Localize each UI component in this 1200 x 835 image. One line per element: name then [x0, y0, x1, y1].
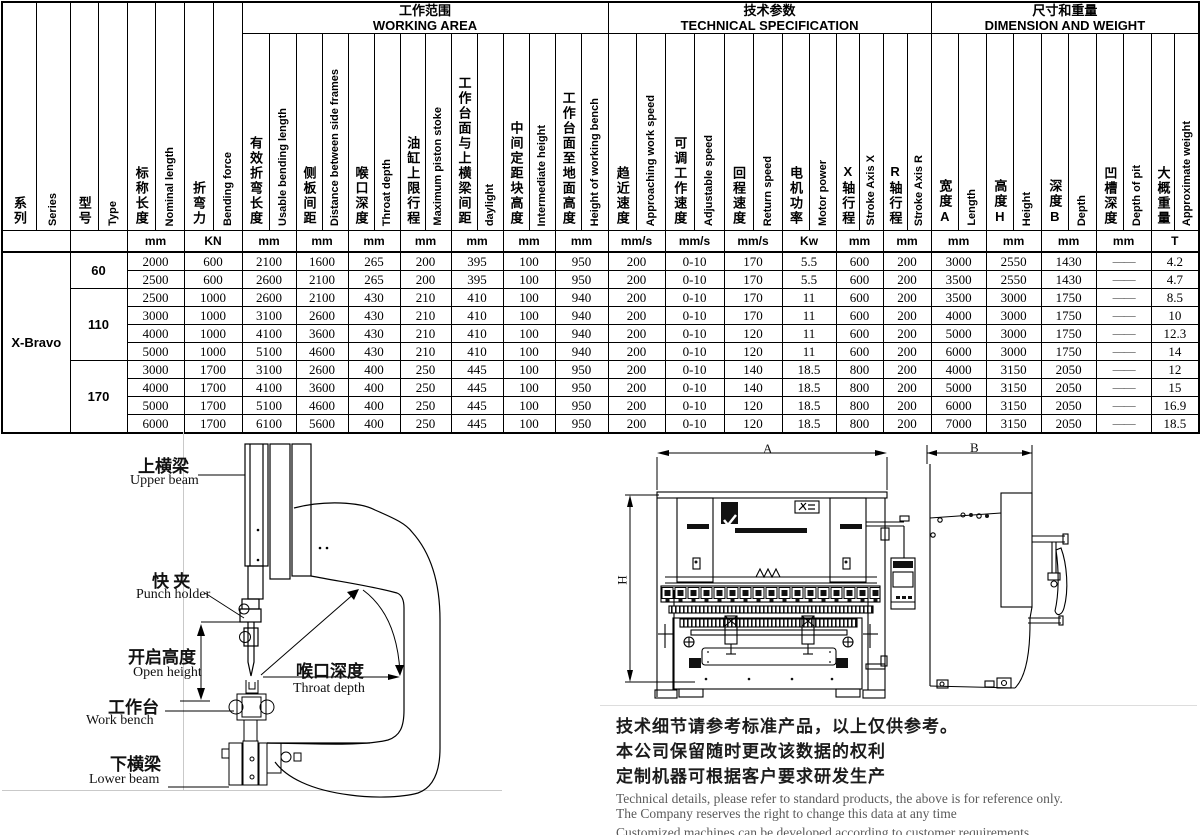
- spec-cell: 0-10: [665, 361, 724, 379]
- series-cell: X-Bravo: [2, 252, 70, 433]
- spec-cell: 2000: [127, 252, 184, 271]
- spec-cell: 250: [400, 361, 451, 379]
- spec-cell: 2500: [127, 289, 184, 307]
- open-height-label-en: Open height: [133, 665, 202, 681]
- spec-cell: 600: [836, 252, 883, 271]
- spec-cell: 6000: [931, 397, 986, 415]
- column-header-cn: 可调工作速度: [670, 136, 689, 226]
- spec-cell: 1000: [184, 289, 242, 307]
- spec-table: 系列Series 型号Type 标称长度Nominal length 折弯力Be…: [1, 1, 1200, 434]
- spec-cell: 200: [608, 361, 665, 379]
- spec-cell: ——: [1096, 307, 1151, 325]
- throat-depth-label-cn: 喉口深度: [296, 657, 364, 682]
- spec-cell: 940: [555, 289, 608, 307]
- disclaimer-en-line: The Company reserves the right to change…: [616, 807, 1063, 822]
- spec-cell: 11: [782, 289, 836, 307]
- column-header-depth-b: 深度BDepth: [1041, 34, 1096, 231]
- group-label-en: DIMENSION AND WEIGHT: [932, 18, 1199, 33]
- spec-cell: 800: [836, 379, 883, 397]
- spec-cell: 2050: [1041, 361, 1096, 379]
- unit-cell: [2, 231, 70, 253]
- column-header-height-h: 高度HHeight: [986, 34, 1041, 231]
- column-header-cn: R轴行程: [886, 164, 905, 226]
- spec-cell: 1750: [1041, 325, 1096, 343]
- spec-cell: 2050: [1041, 379, 1096, 397]
- spec-cell: ——: [1096, 343, 1151, 361]
- spec-cell: 400: [348, 397, 400, 415]
- column-header-cn: 高度H: [990, 179, 1009, 226]
- spec-cell: 10: [1151, 307, 1199, 325]
- column-header-piston-stroke: 油缸上限行程Maximum piston stoke: [400, 34, 451, 231]
- spec-cell: ——: [1096, 289, 1151, 307]
- column-header-cn: 深度B: [1045, 179, 1064, 226]
- column-header-en: Motor power: [817, 160, 829, 226]
- spec-cell: 18.5: [782, 415, 836, 434]
- spec-cell: 4000: [931, 361, 986, 379]
- spec-cell: 1430: [1041, 252, 1096, 271]
- column-header-cn: 大概重量: [1153, 166, 1172, 226]
- column-header-cn: 有效折弯长度: [246, 136, 265, 226]
- dim-a-label: A: [763, 441, 772, 457]
- spec-cell: 0-10: [665, 289, 724, 307]
- spec-cell: 210: [400, 343, 451, 361]
- spec-cell: 800: [836, 361, 883, 379]
- spec-cell: 3000: [127, 307, 184, 325]
- spec-cell: 120: [724, 325, 782, 343]
- spec-cell: 210: [400, 289, 451, 307]
- column-header-cn: 凹槽深度: [1100, 166, 1119, 226]
- spec-cell: 2600: [296, 361, 348, 379]
- spec-cell: 940: [555, 307, 608, 325]
- spec-cell: 200: [883, 361, 931, 379]
- spec-cell: 200: [883, 397, 931, 415]
- spec-cell: 170: [724, 271, 782, 289]
- group-header-row: 系列Series 型号Type 标称长度Nominal length 折弯力Be…: [2, 2, 1199, 34]
- spec-cell: 445: [451, 397, 503, 415]
- spec-cell: 12.3: [1151, 325, 1199, 343]
- unit-cell: mm: [931, 231, 986, 253]
- spec-cell: 600: [836, 343, 883, 361]
- spec-cell: 11: [782, 307, 836, 325]
- spec-cell: 0-10: [665, 252, 724, 271]
- column-header-en: Height: [1021, 192, 1033, 226]
- disclaimer-en-line: Customized machines can be developed acc…: [616, 826, 1063, 835]
- unit-cell: Kw: [782, 231, 836, 253]
- front-view-diagram: [615, 440, 925, 710]
- column-header-en: Type: [107, 201, 119, 226]
- spec-cell: 4000: [127, 379, 184, 397]
- spec-cell: 170: [724, 289, 782, 307]
- spec-cell: 3600: [296, 379, 348, 397]
- group-label-cn: 工作范围: [243, 3, 608, 18]
- spec-cell: 5100: [242, 343, 296, 361]
- column-header-en: Usable bending length: [277, 108, 289, 226]
- spec-row: 2500600260021002652003951009502000-10170…: [2, 271, 1199, 289]
- unit-cell: mm: [986, 231, 1041, 253]
- spec-cell: 3100: [242, 361, 296, 379]
- spec-cell: 200: [608, 379, 665, 397]
- spec-cell: 200: [883, 415, 931, 434]
- spec-cell: 200: [883, 307, 931, 325]
- separator-line: [600, 705, 1197, 706]
- column-header-cn: 趋近速度: [613, 166, 632, 226]
- column-header-cn: 标称长度: [132, 166, 151, 226]
- spec-cell: 4100: [242, 325, 296, 343]
- column-header-cn: X轴行程: [838, 164, 857, 226]
- dim-h-label: H: [615, 575, 631, 584]
- column-header-motor-power: 电机功率Motor power: [782, 34, 836, 231]
- group-technical-specification: 技术参数 TECHNICAL SPECIFICATION: [608, 2, 931, 34]
- spec-cell: 430: [348, 289, 400, 307]
- spec-cell: 410: [451, 289, 503, 307]
- spec-cell: 600: [184, 252, 242, 271]
- spec-cell: 210: [400, 307, 451, 325]
- spec-cell: 395: [451, 252, 503, 271]
- spec-cell: 950: [555, 415, 608, 434]
- disclaimer-cn-line: 本公司保留随时更改该数据的权利: [616, 739, 958, 764]
- unit-cell: mm: [883, 231, 931, 253]
- column-header-stroke-r: R轴行程Stroke Axis R: [883, 34, 931, 231]
- punch-holder-label-en: Punch holder: [136, 587, 210, 603]
- spec-row: 40001700410036004002504451009502000-1014…: [2, 379, 1199, 397]
- spec-cell: 4.2: [1151, 252, 1199, 271]
- spec-cell: 1700: [184, 379, 242, 397]
- spec-cell: 15: [1151, 379, 1199, 397]
- spec-cell: 1700: [184, 397, 242, 415]
- spec-cell: 430: [348, 343, 400, 361]
- type-cell: 110: [70, 289, 127, 361]
- unit-cell: mm/s: [608, 231, 665, 253]
- type-cell: 170: [70, 361, 127, 434]
- spec-cell: 2100: [296, 289, 348, 307]
- spec-cell: 2550: [986, 252, 1041, 271]
- spec-cell: 1600: [296, 252, 348, 271]
- spec-cell: 0-10: [665, 307, 724, 325]
- spec-cell: 5.5: [782, 252, 836, 271]
- spec-cell: 1000: [184, 343, 242, 361]
- column-header-intermediate-height: 中间定距块高度Intermediate height: [503, 34, 555, 231]
- spec-cell: 1750: [1041, 289, 1096, 307]
- spec-cell: 210: [400, 325, 451, 343]
- side-view-diagram: [925, 440, 1075, 710]
- spec-cell: 7000: [931, 415, 986, 434]
- spec-cell: 4000: [931, 307, 986, 325]
- column-header-en: Stroke Axis X: [865, 155, 877, 226]
- spec-cell: 200: [883, 289, 931, 307]
- spec-cell: 200: [608, 397, 665, 415]
- unit-cell: mm: [1096, 231, 1151, 253]
- column-header-approach-speed: 趋近速度Approaching work speed: [608, 34, 665, 231]
- spec-cell: 5100: [242, 397, 296, 415]
- spec-cell: 3500: [931, 289, 986, 307]
- spec-cell: 200: [883, 271, 931, 289]
- column-header-en: Bending force: [222, 152, 234, 226]
- spec-cell: 2100: [296, 271, 348, 289]
- spec-cell: 2100: [242, 252, 296, 271]
- column-header-cn: 电机功率: [786, 166, 805, 226]
- type-cell: 60: [70, 252, 127, 289]
- throat-depth-label-en: Throat depth: [293, 681, 365, 697]
- spec-cell: 2550: [986, 271, 1041, 289]
- unit-cell: KN: [184, 231, 242, 253]
- column-header-adjustable-speed: 可调工作速度Adjustable speed: [665, 34, 724, 231]
- spec-cell: 18.5: [1151, 415, 1199, 434]
- column-header-cn: 中间定距块高度: [507, 121, 526, 226]
- spec-cell: 3000: [127, 361, 184, 379]
- group-dimension-weight: 尺寸和重量 DIMENSION AND WEIGHT: [931, 2, 1199, 34]
- spec-cell: 1750: [1041, 307, 1096, 325]
- spec-row: 50001000510046004302104101009402000-1012…: [2, 343, 1199, 361]
- spec-cell: 3150: [986, 397, 1041, 415]
- spec-cell: ——: [1096, 397, 1151, 415]
- column-header-usable-length: 有效折弯长度Usable bending length: [242, 34, 296, 231]
- spec-cell: 100: [503, 325, 555, 343]
- disclaimer-cn-line: 定制机器可根据客户要求研发生产: [616, 764, 958, 789]
- unit-cell: mm: [296, 231, 348, 253]
- spec-cell: 5000: [931, 379, 986, 397]
- column-header-en: Adjustable speed: [703, 135, 715, 226]
- spec-cell: 950: [555, 361, 608, 379]
- spec-cell: 940: [555, 343, 608, 361]
- unit-cell: mm/s: [665, 231, 724, 253]
- spec-cell: 200: [608, 307, 665, 325]
- spec-cell: 200: [883, 325, 931, 343]
- spec-cell: ——: [1096, 415, 1151, 434]
- disclaimer-en-line: Technical details, please refer to stand…: [616, 792, 1063, 807]
- column-header-en: Distance between side frames: [329, 69, 341, 226]
- units-row: mmKNmmmmmmmmmmmmmmmm/smm/smm/sKwmmmmmmmm…: [2, 231, 1199, 253]
- spec-cell: 200: [400, 252, 451, 271]
- column-header-bench-height: 工作台面至地面高度Height of working bench: [555, 34, 608, 231]
- spec-cell: 950: [555, 397, 608, 415]
- spec-cell: 100: [503, 397, 555, 415]
- column-header-en: Return speed: [762, 156, 774, 226]
- spec-cell: 0-10: [665, 343, 724, 361]
- column-header-en: Intermediate height: [536, 125, 548, 226]
- spec-cell: 395: [451, 271, 503, 289]
- spec-cell: 950: [555, 252, 608, 271]
- column-header-return-speed: 回程速度Return speed: [724, 34, 782, 231]
- column-header-en: daylight: [484, 184, 496, 226]
- spec-cell: 100: [503, 289, 555, 307]
- unit-cell: mm: [400, 231, 451, 253]
- column-header-pit-depth: 凹槽深度Depth of pit: [1096, 34, 1151, 231]
- spec-cell: 400: [348, 379, 400, 397]
- spec-cell: 120: [724, 343, 782, 361]
- spec-cell: 0-10: [665, 325, 724, 343]
- column-header-en: Length: [966, 189, 978, 226]
- spec-cell: 100: [503, 252, 555, 271]
- spec-cell: 200: [608, 343, 665, 361]
- unit-cell: mm: [1041, 231, 1096, 253]
- spec-cell: 800: [836, 397, 883, 415]
- unit-cell: T: [1151, 231, 1199, 253]
- spec-cell: 410: [451, 343, 503, 361]
- group-label-en: TECHNICAL SPECIFICATION: [609, 18, 931, 33]
- spec-cell: 120: [724, 415, 782, 434]
- spec-cell: 3600: [296, 325, 348, 343]
- spec-cell: 1000: [184, 325, 242, 343]
- spec-cell: 950: [555, 271, 608, 289]
- spec-cell: 2050: [1041, 415, 1096, 434]
- spec-cell: 400: [348, 361, 400, 379]
- spec-cell: 445: [451, 379, 503, 397]
- spec-cell: 600: [836, 271, 883, 289]
- spec-cell: 5000: [127, 343, 184, 361]
- spec-cell: 200: [608, 252, 665, 271]
- group-label-en: WORKING AREA: [243, 18, 608, 33]
- spec-row: 11025001000260021004302104101009402000-1…: [2, 289, 1199, 307]
- spec-cell: 430: [348, 307, 400, 325]
- spec-cell: 2500: [127, 271, 184, 289]
- unit-cell: mm: [127, 231, 184, 253]
- spec-cell: 410: [451, 307, 503, 325]
- spec-cell: 100: [503, 271, 555, 289]
- spec-cell: 18.5: [782, 361, 836, 379]
- spec-cell: 3150: [986, 415, 1041, 434]
- spec-cell: 3150: [986, 361, 1041, 379]
- spec-cell: 11: [782, 325, 836, 343]
- unit-cell: mm/s: [724, 231, 782, 253]
- spec-row: X-Bravo602000600210016002652003951009502…: [2, 252, 1199, 271]
- unit-cell: mm: [503, 231, 555, 253]
- spec-row: 17030001700310026004002504451009502000-1…: [2, 361, 1199, 379]
- spec-cell: 4100: [242, 379, 296, 397]
- spec-cell: 2600: [296, 307, 348, 325]
- upper-beam-label-en: Upper beam: [130, 473, 199, 489]
- column-header-en: Series: [47, 193, 59, 226]
- spec-cell: 100: [503, 307, 555, 325]
- column-header-side-frames: 侧板间距Distance between side frames: [296, 34, 348, 231]
- disclaimer-cn: 技术细节请参考标准产品，以上仅供参考。 本公司保留随时更改该数据的权利 定制机器…: [616, 714, 958, 789]
- spec-cell: 170: [724, 307, 782, 325]
- spec-cell: ——: [1096, 271, 1151, 289]
- column-header-en: Maximum piston stoke: [432, 107, 444, 226]
- column-header-stroke-x: X轴行程Stroke Axis X: [836, 34, 883, 231]
- column-header-weight: 大概重量Approximate weight: [1151, 34, 1199, 231]
- datasheet-page: 系列Series 型号Type 标称长度Nominal length 折弯力Be…: [0, 0, 1200, 835]
- spec-cell: 3000: [986, 289, 1041, 307]
- column-header-en: Approximate weight: [1181, 121, 1193, 226]
- column-header-type: 型号Type: [70, 2, 127, 231]
- spec-cell: 940: [555, 325, 608, 343]
- spec-cell: 5000: [127, 397, 184, 415]
- unit-cell: mm: [348, 231, 400, 253]
- spec-cell: 100: [503, 379, 555, 397]
- spec-cell: 14: [1151, 343, 1199, 361]
- column-header-daylight: 工作台面与上横梁间距daylight: [451, 34, 503, 231]
- spec-cell: 100: [503, 343, 555, 361]
- group-label-cn: 尺寸和重量: [932, 3, 1199, 18]
- spec-cell: 1430: [1041, 271, 1096, 289]
- spec-cell: 200: [608, 289, 665, 307]
- column-header-cn: 回程速度: [729, 166, 748, 226]
- spec-cell: 200: [608, 415, 665, 434]
- column-header-cn: 折弯力: [189, 181, 208, 226]
- spec-cell: 11: [782, 343, 836, 361]
- dim-b-label: B: [970, 440, 979, 456]
- spec-cell: 12: [1151, 361, 1199, 379]
- unit-cell: mm: [555, 231, 608, 253]
- spec-cell: 4600: [296, 397, 348, 415]
- spec-cell: 445: [451, 361, 503, 379]
- spec-cell: 1750: [1041, 343, 1096, 361]
- spec-cell: 265: [348, 252, 400, 271]
- spec-row: 40001000410036004302104101009402000-1012…: [2, 325, 1199, 343]
- spec-cell: 0-10: [665, 379, 724, 397]
- spec-cell: 2600: [242, 271, 296, 289]
- column-header-cn: 工作台面与上横梁间距: [455, 76, 474, 226]
- spec-cell: 1000: [184, 307, 242, 325]
- spec-cell: 6000: [931, 343, 986, 361]
- spec-cell: 18.5: [782, 379, 836, 397]
- spec-cell: 120: [724, 397, 782, 415]
- spec-cell: 16.9: [1151, 397, 1199, 415]
- spec-cell: 800: [836, 415, 883, 434]
- column-header-en: Depth of pit: [1131, 165, 1143, 226]
- spec-cell: 600: [836, 307, 883, 325]
- spec-cell: 18.5: [782, 397, 836, 415]
- unit-cell: mm: [451, 231, 503, 253]
- spec-cell: 0-10: [665, 415, 724, 434]
- column-header-en: Throat depth: [381, 159, 393, 226]
- column-header-series: 系列Series: [2, 2, 70, 231]
- spec-cell: 3000: [986, 343, 1041, 361]
- spec-cell: 3150: [986, 379, 1041, 397]
- spec-cell: 0-10: [665, 397, 724, 415]
- unit-cell: mm: [242, 231, 296, 253]
- column-header-width-a: 宽度ALength: [931, 34, 986, 231]
- column-header-throat-depth: 喉口深度Throat depth: [348, 34, 400, 231]
- spec-cell: ——: [1096, 325, 1151, 343]
- spec-cell: 140: [724, 379, 782, 397]
- spec-cell: 2600: [242, 289, 296, 307]
- disclaimer-en: Technical details, please refer to stand…: [616, 792, 1063, 835]
- column-header-cn: 侧板间距: [300, 166, 319, 226]
- spec-cell: ——: [1096, 252, 1151, 271]
- spec-cell: 5.5: [782, 271, 836, 289]
- spec-cell: 250: [400, 379, 451, 397]
- spec-cell: 265: [348, 271, 400, 289]
- spec-cell: ——: [1096, 379, 1151, 397]
- group-working-area: 工作范围 WORKING AREA: [242, 2, 608, 34]
- spec-cell: 4000: [127, 325, 184, 343]
- spec-cell: 100: [503, 415, 555, 434]
- disclaimer-cn-line: 技术细节请参考标准产品，以上仅供参考。: [616, 714, 958, 739]
- spec-cell: 600: [836, 325, 883, 343]
- spec-cell: 8.5: [1151, 289, 1199, 307]
- spec-cell: 200: [608, 325, 665, 343]
- spec-cell: 2050: [1041, 397, 1096, 415]
- spec-cell: 200: [883, 343, 931, 361]
- column-header-en: Stroke Axis R: [913, 155, 925, 226]
- spec-cell: 0-10: [665, 271, 724, 289]
- spec-row: 30001000310026004302104101009402000-1017…: [2, 307, 1199, 325]
- group-label-cn: 技术参数: [609, 3, 931, 18]
- spec-cell: 250: [400, 397, 451, 415]
- column-header-cn: 喉口深度: [352, 166, 371, 226]
- spec-cell: 100: [503, 361, 555, 379]
- column-header-en: Approaching work speed: [645, 95, 657, 226]
- spec-cell: 140: [724, 361, 782, 379]
- spec-cell: 200: [608, 271, 665, 289]
- spec-cell: 200: [883, 252, 931, 271]
- column-header-cn: 油缸上限行程: [403, 136, 422, 226]
- spec-cell: 3000: [986, 307, 1041, 325]
- column-header-cn: 工作台面至地面高度: [559, 91, 578, 226]
- spec-cell: 200: [883, 379, 931, 397]
- unit-cell: mm: [836, 231, 883, 253]
